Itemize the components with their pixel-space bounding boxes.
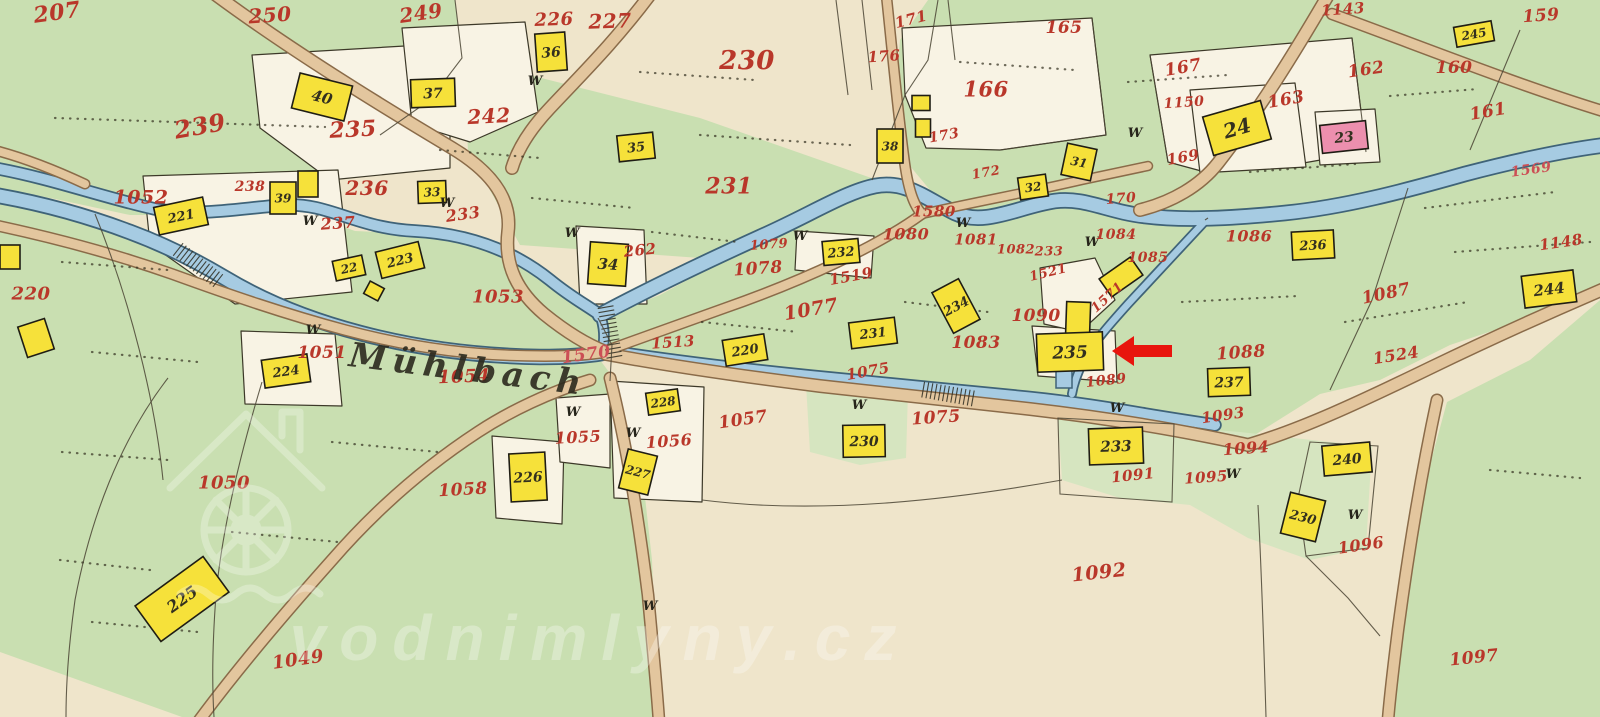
parcel-number-label: 250 bbox=[247, 2, 293, 29]
building-36: 36 bbox=[535, 32, 568, 72]
parcel-number-label: 1150 bbox=[1163, 93, 1205, 112]
meadow-w-mark: W bbox=[566, 405, 582, 420]
building-number-label: 236 bbox=[1298, 238, 1327, 254]
meadow-w-mark: W bbox=[1348, 508, 1364, 523]
parcel-number-label: 1082 bbox=[997, 243, 1035, 258]
building-228: 228 bbox=[646, 389, 681, 415]
parcel-number-label: 170 bbox=[1105, 190, 1137, 208]
parcel-number-label: 230 bbox=[718, 46, 775, 76]
building-number-label: 38 bbox=[882, 139, 899, 153]
parcel-number-label: 236 bbox=[344, 176, 388, 200]
meadow-w-mark: W bbox=[793, 229, 809, 244]
parcel-number-label: 231 bbox=[704, 174, 752, 200]
meadow-w-mark: W bbox=[852, 398, 868, 413]
parcel-number-label: 1580 bbox=[912, 202, 956, 220]
parcel-number-label: 1088 bbox=[1216, 341, 1267, 364]
meadow-w-mark: W bbox=[626, 426, 642, 441]
building-footprint bbox=[912, 96, 930, 111]
parcel-number-label: 1095 bbox=[1184, 467, 1229, 488]
parcel-number-label: 1080 bbox=[883, 225, 930, 244]
parcel-number-label: 176 bbox=[867, 46, 901, 66]
parcel-number-label: 1143 bbox=[1321, 0, 1366, 20]
meadow-w-mark: W bbox=[303, 214, 319, 229]
parcel-number-label: 1086 bbox=[1226, 227, 1273, 246]
parcel-number-label: 1090 bbox=[1011, 306, 1060, 326]
building-number-label: 35 bbox=[626, 140, 646, 157]
parcel-number-label: 1057 bbox=[717, 407, 769, 434]
parcel-number-label: 1051 bbox=[297, 343, 346, 363]
parcel-number-label: 1055 bbox=[554, 426, 601, 447]
parcel-boundary-line bbox=[862, 0, 872, 90]
building-236: 236 bbox=[1291, 230, 1334, 260]
building-unlabeled bbox=[0, 245, 20, 269]
parcel-boundary-line bbox=[1306, 556, 1380, 636]
parcel-number-label: 237 bbox=[319, 212, 356, 233]
meadow-w-mark: W bbox=[565, 226, 581, 241]
building-38: 38 bbox=[877, 129, 903, 163]
meadow-w-mark: W bbox=[306, 323, 322, 338]
parcel-number-label: 226 bbox=[533, 9, 574, 31]
parcel-number-label: 1094 bbox=[1222, 437, 1270, 459]
building-233: 233 bbox=[1088, 427, 1143, 465]
building-number-label: 23 bbox=[1333, 129, 1355, 147]
parcel-number-label: 238 bbox=[234, 179, 266, 195]
parcel-number-label: 1078 bbox=[733, 257, 784, 280]
meadow-w-mark: W bbox=[1128, 126, 1144, 141]
building-number-label: 232 bbox=[826, 245, 855, 262]
building-number-label: 237 bbox=[1213, 375, 1244, 392]
parcel-number-label: 1058 bbox=[438, 479, 488, 502]
parcel-number-label: 165 bbox=[1046, 18, 1083, 38]
parcel-number-label: 1092 bbox=[1071, 559, 1128, 587]
parcel-number-label: 1079 bbox=[750, 236, 789, 254]
cadastral-map-image: 4037363533383231242324523624422139222233… bbox=[0, 0, 1600, 717]
building-footprint bbox=[0, 245, 20, 269]
watermark-spokes-icon bbox=[204, 488, 288, 572]
building-231: 231 bbox=[849, 317, 898, 348]
building-35: 35 bbox=[617, 132, 656, 162]
parcel-number-label: 1085 bbox=[1128, 250, 1169, 266]
building-unlabeled bbox=[912, 96, 930, 111]
building-232: 232 bbox=[822, 238, 860, 265]
building-number-label: 233 bbox=[1099, 437, 1132, 456]
building-220: 220 bbox=[722, 334, 768, 366]
parcel-number-label: 160 bbox=[1436, 58, 1473, 78]
building-34: 34 bbox=[588, 242, 629, 287]
parcel-number-label: 1053 bbox=[472, 286, 524, 307]
meadow-w-mark: W bbox=[528, 74, 544, 89]
meadow-w-mark: W bbox=[956, 216, 972, 231]
building-32: 32 bbox=[1018, 174, 1049, 200]
building-37: 37 bbox=[411, 78, 456, 108]
building-number-label: 240 bbox=[1331, 451, 1363, 470]
building-number-label: 39 bbox=[275, 191, 292, 205]
building-number-label: 33 bbox=[423, 185, 440, 200]
building-237: 237 bbox=[1208, 367, 1251, 396]
building-footprint bbox=[298, 171, 318, 197]
building-unlabeled bbox=[298, 171, 318, 197]
building-number-label: 226 bbox=[512, 469, 543, 487]
parcel-boundary-line bbox=[836, 0, 848, 95]
cadastral-map-viewport: 4037363533383231242324523624422139222233… bbox=[0, 0, 1600, 717]
building-39: 39 bbox=[270, 182, 296, 214]
parcel-number-label: 1513 bbox=[651, 332, 696, 353]
parcel-number-label: 1075 bbox=[911, 406, 962, 429]
building-number-label: 235 bbox=[1051, 343, 1088, 364]
building-number-label: 36 bbox=[541, 44, 562, 61]
building-number-label: 32 bbox=[1024, 179, 1042, 195]
building-240: 240 bbox=[1322, 442, 1372, 476]
building-number-label: 37 bbox=[423, 86, 443, 103]
building-31: 31 bbox=[1061, 143, 1097, 181]
parcel-number-label: 233 bbox=[1034, 245, 1064, 260]
building-23: 23 bbox=[1320, 121, 1369, 154]
meadow-w-mark: W bbox=[1110, 401, 1126, 416]
building-230: 230 bbox=[843, 425, 886, 458]
parcel-number-label: 1056 bbox=[645, 430, 693, 452]
building-226: 226 bbox=[509, 452, 547, 502]
parcel-number-label: 233 bbox=[443, 202, 481, 226]
parcel-number-label: 1084 bbox=[1096, 227, 1137, 243]
watermark-text: vodnimlyny.cz bbox=[290, 602, 911, 674]
parcel-number-label: 159 bbox=[1522, 5, 1560, 28]
parcel-number-label: 1081 bbox=[954, 230, 998, 248]
parcel-number-label: 242 bbox=[466, 103, 511, 129]
parcel-number-label: 235 bbox=[328, 115, 378, 143]
building-235: 235 bbox=[1036, 332, 1103, 372]
parcel-boundary-line bbox=[702, 480, 1062, 506]
parcel-number-label: 262 bbox=[622, 240, 658, 261]
parcel-number-label: 1083 bbox=[951, 333, 1000, 353]
parcel-number-label: 166 bbox=[963, 76, 1008, 101]
parcel-number-label: 227 bbox=[587, 8, 632, 34]
building-number-label: 34 bbox=[597, 255, 619, 274]
building-number-label: 230 bbox=[848, 434, 879, 451]
parcel-number-label: 1052 bbox=[114, 187, 169, 209]
parcel-number-label: 220 bbox=[10, 283, 50, 304]
building-244: 244 bbox=[1521, 270, 1577, 308]
